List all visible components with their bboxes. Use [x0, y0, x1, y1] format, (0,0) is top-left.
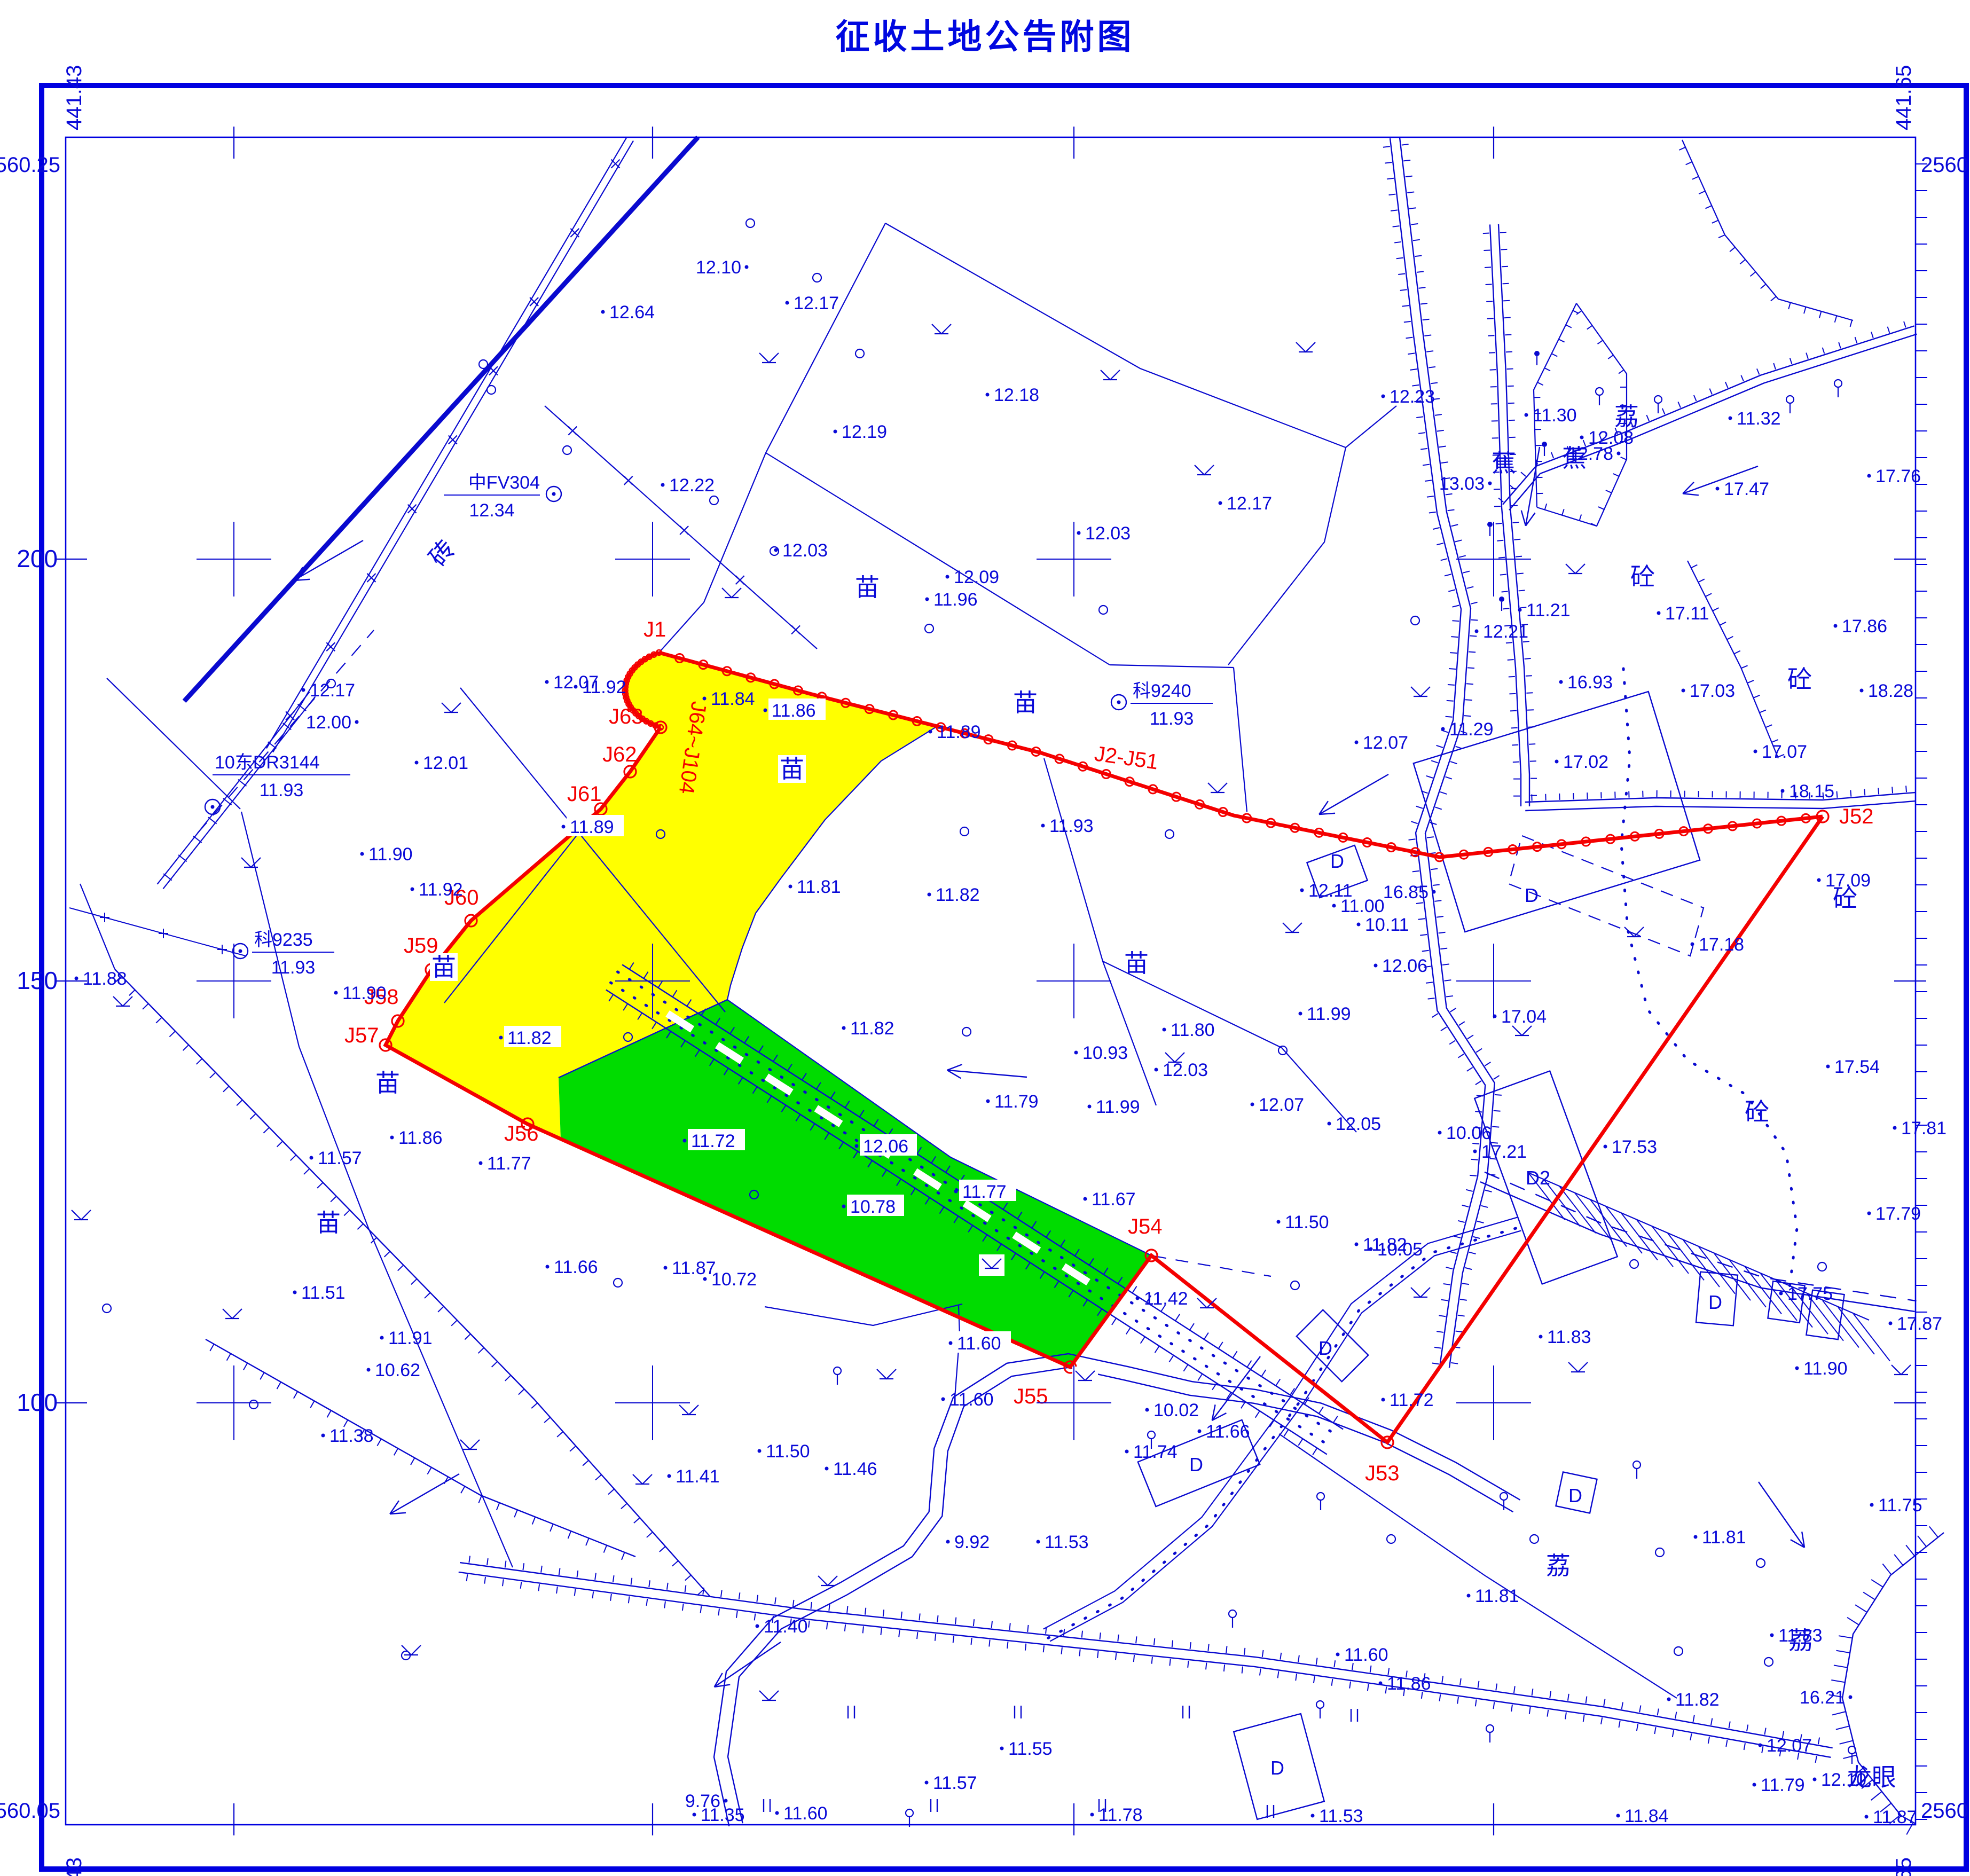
slope-tick [1855, 337, 1857, 343]
land-use-label: 苗 [780, 755, 804, 783]
slope-tick [1460, 1299, 1467, 1300]
spot-height-value: 11.66 [554, 1257, 598, 1277]
paddy-icon [764, 1799, 770, 1812]
slope-tick [438, 1306, 444, 1312]
slope-tick [1469, 1252, 1476, 1254]
flow-arrow-icon [294, 540, 363, 580]
slope-tick [1415, 256, 1422, 257]
spot-height-value: 11.84 [711, 689, 755, 709]
slope-tick [647, 1532, 653, 1537]
slope-tick [1412, 385, 1419, 386]
slope-tick [478, 1496, 482, 1503]
grass-icon [679, 1405, 698, 1415]
slope-tick [1416, 417, 1423, 418]
tree-icon [249, 1400, 258, 1409]
spot-height-value: 12.17 [310, 680, 355, 701]
spot-height-value: 11.84 [1624, 1806, 1669, 1826]
slope-tick [955, 1618, 956, 1624]
spot-height-value: 11.90 [342, 983, 387, 1003]
tree-icon [1099, 606, 1108, 614]
spot-height-value: 11.82 [507, 1028, 552, 1048]
spot-height-value: 12.07 [1363, 733, 1408, 753]
slope-tick [1420, 303, 1427, 304]
slope-tick [1526, 693, 1533, 693]
slope-tick [1675, 1712, 1676, 1719]
slope-tick [1441, 462, 1448, 463]
slope-tick [129, 990, 135, 995]
slope-tick [1583, 1715, 1584, 1722]
spot-height-value: 11.55 [1008, 1739, 1053, 1759]
slope-tick [1804, 307, 1806, 313]
slope-tick [1512, 745, 1518, 745]
tree-icon [746, 219, 755, 227]
slope-tick [1840, 1740, 1853, 1744]
spot-height-dot [1163, 1028, 1166, 1032]
spot-height-value: 11.50 [1285, 1212, 1329, 1233]
spot-height-dot [941, 1398, 945, 1401]
slope-tick [1495, 1095, 1502, 1095]
slope-tick [1155, 1346, 1159, 1353]
slope-tick [1706, 593, 1712, 596]
slope-tick [647, 1599, 648, 1606]
spot-height-dot [1893, 1126, 1897, 1130]
slope-tick [1501, 249, 1507, 250]
spot-height-value: 11.60 [783, 1803, 828, 1824]
slope-tick [1208, 1644, 1208, 1651]
slope-tick [1551, 452, 1553, 458]
slope-tick [682, 1604, 684, 1611]
fence-x-icon [408, 505, 417, 513]
spot-height-dot [949, 1341, 953, 1345]
slope-tick [1427, 837, 1434, 838]
slope-tick [701, 1606, 702, 1613]
slope-tick [1505, 335, 1511, 335]
slope-tick [1613, 474, 1619, 476]
slope-tick [1284, 1430, 1288, 1437]
flow-arrow-icon [947, 1070, 1027, 1077]
spot-height-value: 12.07 [1767, 1736, 1812, 1756]
slope-tick [1009, 1623, 1010, 1630]
tree-icon [1630, 1260, 1638, 1268]
spot-height-value: 11.90 [368, 844, 413, 865]
slope-tick [1473, 1237, 1480, 1238]
slope-tick [1394, 242, 1401, 243]
spot-height-value: 11.89 [570, 817, 614, 837]
spot-height-value: 11.40 [764, 1616, 808, 1637]
spot-height-dot [562, 825, 566, 829]
spot-height-dot [693, 1813, 696, 1817]
slope-tick [1439, 446, 1446, 448]
slope-tick [1446, 777, 1452, 779]
slope-tick [1406, 337, 1413, 339]
slope-tick [1412, 871, 1419, 872]
flow-arrow-icon [1319, 774, 1388, 814]
slope-tick [1439, 1315, 1446, 1316]
tree-icon [1165, 830, 1174, 838]
slope-tick [523, 1563, 524, 1570]
corner-coordinate: 441.65 [1892, 1857, 1916, 1876]
slope-tick [1503, 301, 1510, 301]
spot-height-value: 12.03 [1085, 523, 1131, 544]
slope-tick [394, 1448, 398, 1455]
fruit-tree-icon [1633, 1461, 1641, 1469]
spot-height-dot [668, 1474, 671, 1478]
land-use-label: 荔 [1614, 403, 1639, 430]
spot-height-value: 17.87 [1897, 1314, 1942, 1334]
slope-tick [411, 1458, 414, 1465]
slope-tick [1204, 1333, 1208, 1340]
slope-tick [1172, 1640, 1173, 1647]
slope-tick [1761, 284, 1766, 288]
slope-tick [1432, 1014, 1438, 1017]
spot-height-value: 11.92 [582, 677, 626, 697]
tree-icon [1674, 1647, 1683, 1655]
spot-height-value: 11.50 [766, 1441, 810, 1462]
slope-tick [1882, 1564, 1891, 1574]
slope-tick [1834, 1665, 1848, 1667]
slope-tick [1476, 1049, 1482, 1053]
slope-tick [1465, 1268, 1472, 1269]
slope-tick [538, 1584, 539, 1591]
slope-tick [1298, 1655, 1299, 1662]
spot-height-value: 11.60 [957, 1333, 1001, 1354]
slope-tick [250, 1114, 256, 1119]
spot-height-dot [1555, 760, 1559, 764]
slope-tick [1513, 522, 1519, 523]
slope-tick [1420, 935, 1427, 936]
line [1490, 224, 1521, 806]
land-use-label: 苗 [1013, 689, 1038, 717]
parcel-line [107, 678, 240, 809]
spot-height-value: 16.93 [1567, 672, 1613, 693]
spot-height-dot [1219, 501, 1222, 505]
slope-tick [1863, 1592, 1875, 1600]
slope-tick [1416, 806, 1423, 809]
slope-tick [1598, 340, 1603, 344]
tree-icon [563, 446, 571, 454]
fence-x-icon [489, 366, 498, 375]
grass-icon [1296, 342, 1315, 352]
slope-tick [1492, 1127, 1499, 1127]
slope-tick [775, 1597, 776, 1604]
map-page: 征收土地公告附图 J1J63J62J61J60J59J58J57J56J55J5… [0, 0, 1970, 1876]
slope-tick [237, 1100, 242, 1105]
slope-tick [1190, 1323, 1194, 1330]
spot-height-dot [1074, 1051, 1078, 1055]
slope-tick [1847, 1618, 1859, 1625]
spot-height-value: 11.82 [850, 1018, 894, 1039]
slope-tick [1434, 900, 1441, 901]
spot-height-value: 10.11 [1365, 915, 1409, 935]
slope-tick [541, 1566, 542, 1573]
spot-height-value: 11.29 [1449, 719, 1494, 740]
slope-tick [736, 1611, 737, 1618]
slope-tick [664, 1602, 665, 1608]
building-label: D [1189, 1454, 1203, 1475]
spot-height-dot [1198, 1430, 1202, 1433]
spot-height-value: 11.78 [1098, 1805, 1143, 1825]
spot-height-value: 17.07 [1762, 742, 1807, 762]
slope-tick [1280, 1653, 1281, 1660]
slope-tick [1437, 745, 1443, 748]
slope-tick [1333, 1416, 1338, 1423]
spot-height-dot [928, 893, 931, 897]
spot-height-value: 18.15 [1789, 781, 1834, 802]
slope-tick [827, 1622, 827, 1629]
slope-tick [1469, 652, 1475, 652]
slope-tick [1906, 786, 1906, 792]
grid-cross-icon [615, 522, 690, 596]
spot-height-value: 12.21 [1483, 622, 1528, 642]
paddy-icon [1183, 1706, 1189, 1718]
slope-tick [277, 1382, 281, 1389]
spot-height-dot [367, 1368, 371, 1372]
slope-tick [1894, 1555, 1903, 1565]
fruit-tree-icon [1486, 1725, 1494, 1732]
spot-height-dot [1473, 1150, 1477, 1153]
slope-tick [685, 1585, 686, 1592]
spot-height-dot [1694, 1535, 1698, 1539]
slope-tick [1389, 194, 1396, 195]
spot-height-dot [355, 720, 359, 724]
slope-tick [1760, 710, 1766, 713]
fruit-tree-icon [1148, 1431, 1155, 1439]
spot-height-value: 11.82 [1675, 1690, 1720, 1710]
slope-tick [1771, 296, 1776, 301]
slope-tick [1718, 235, 1725, 238]
slope-tick [1836, 1726, 1849, 1729]
building-label: D [1708, 1291, 1722, 1313]
slope-tick [1314, 1676, 1315, 1683]
slope-tick [143, 1003, 148, 1009]
spot-height-value: 10.93 [1082, 1043, 1128, 1063]
fence-x-icon [326, 642, 335, 651]
slope-tick [1662, 409, 1665, 414]
slope-tick [1440, 948, 1447, 949]
control-point-name: 科9235 [254, 930, 313, 950]
banana-plant-icon [1487, 522, 1493, 527]
spot-height-dot [1000, 1747, 1004, 1751]
slope-tick [1507, 369, 1513, 370]
slope-tick [1486, 301, 1493, 302]
slope-tick [1720, 622, 1726, 625]
tree-icon [925, 624, 933, 633]
slope-tick [1686, 162, 1692, 164]
slope-tick [1762, 1746, 1763, 1753]
building-label: D [1525, 884, 1539, 906]
corner-coordinate: 2560.25 [1921, 153, 1970, 177]
slope-tick [156, 1017, 162, 1023]
spot-height-dot [1716, 487, 1720, 491]
spot-height-dot [1441, 727, 1445, 731]
spot-height-value: 11.53 [1045, 1532, 1089, 1552]
grass-icon [633, 1474, 652, 1484]
slope-tick [357, 1224, 363, 1229]
spot-height-dot [1379, 1682, 1383, 1685]
land-use-label: 苗 [316, 1209, 341, 1237]
slope-tick [227, 1354, 231, 1361]
slope-tick [971, 1638, 971, 1645]
spot-height-value: 13.03 [1439, 474, 1485, 494]
slope-tick [1460, 1678, 1461, 1685]
slope-tick [1773, 363, 1776, 369]
slope-tick [1606, 490, 1612, 493]
slope-tick [1219, 1342, 1223, 1349]
slope-tick [1516, 556, 1522, 557]
slope-tick [1462, 1283, 1469, 1284]
spot-height-dot [1432, 890, 1436, 894]
slope-tick [1349, 1682, 1351, 1689]
spot-height-dot [786, 301, 789, 305]
fence-x-icon [530, 297, 538, 306]
slope-tick [244, 1363, 247, 1370]
grid-cross-icon [1037, 944, 1111, 1018]
slope-tick [634, 1518, 640, 1523]
map-canvas: J1J63J62J61J60J59J58J57J56J55J54J53J52J2… [0, 0, 1970, 1876]
spot-height-dot [1759, 1744, 1762, 1747]
slope-tick [1423, 465, 1430, 466]
slope-tick [1226, 1646, 1227, 1653]
slope-tick [1429, 367, 1435, 368]
spot-height-dot [479, 1161, 483, 1165]
slope-tick [1262, 1650, 1263, 1657]
spot-height-dot [758, 1449, 762, 1453]
slope-tick [1693, 1715, 1694, 1722]
slope-tick [1698, 579, 1705, 582]
spot-height-dot [703, 1277, 707, 1281]
slope-tick [1871, 1580, 1883, 1587]
spot-height-value: 11.86 [1387, 1674, 1431, 1694]
boundary-point-label: J53 [1365, 1462, 1400, 1485]
slope-tick [1475, 1699, 1477, 1706]
slope-tick [847, 1606, 847, 1613]
fence-x-icon [570, 229, 579, 237]
slope-tick [1244, 1648, 1245, 1655]
slope-tick [1740, 260, 1745, 264]
label-mask [874, 1365, 899, 1386]
parcel-line [80, 884, 115, 969]
slope-tick [1451, 524, 1458, 526]
slope-tick [1508, 660, 1514, 660]
slope-tick [1619, 370, 1624, 374]
slope-tick [1734, 651, 1740, 654]
spot-height-dot [1355, 1243, 1359, 1246]
slope-tick [1383, 146, 1390, 147]
slope-tick [1467, 1035, 1473, 1039]
corner-coordinate: 2560.05 [1921, 1799, 1970, 1823]
spot-height-dot [703, 697, 707, 701]
grass-icon [1411, 1288, 1430, 1297]
slope-tick [1545, 504, 1547, 509]
slope-tick [1514, 1686, 1515, 1693]
road-edge [273, 141, 633, 752]
slope-tick [1506, 352, 1512, 352]
slope-tick [881, 1628, 881, 1635]
spot-height-dot [1667, 1698, 1671, 1701]
slope-tick [829, 1604, 829, 1611]
slope-tick [1502, 266, 1508, 267]
grass-icon [460, 1440, 480, 1449]
spot-height-dot [756, 1624, 759, 1628]
slope-tick [1637, 1724, 1638, 1731]
slope-tick [1441, 1027, 1447, 1031]
boundary-point-label: J52 [1839, 805, 1874, 828]
fence-x-icon [736, 576, 744, 584]
slope-tick [469, 1556, 470, 1563]
spot-height-dot [75, 977, 79, 980]
slope-tick [492, 1362, 498, 1367]
slope-tick [1458, 1054, 1464, 1058]
line [206, 1339, 635, 1557]
slope-tick [1426, 776, 1433, 778]
slope-tick [1673, 1730, 1674, 1737]
slope-tick [757, 1595, 758, 1602]
slope-tick [1233, 1351, 1237, 1358]
slope-tick [1537, 382, 1543, 385]
slope-tick [1836, 791, 1837, 798]
spot-height-value: 17.47 [1724, 479, 1769, 499]
spot-height-dot [1475, 630, 1479, 633]
slope-tick [1398, 274, 1405, 275]
slope-tick [1757, 368, 1760, 374]
slope-tick [1550, 1691, 1551, 1698]
slope-tick [1451, 637, 1458, 637]
spot-height-value: 12.00 [306, 712, 351, 733]
page-title: 征收土地公告附图 [0, 10, 1970, 59]
spot-height-dot [775, 1811, 779, 1815]
slope-tick [531, 1403, 537, 1408]
slope-tick [1424, 335, 1431, 336]
slope-tick [1441, 1300, 1448, 1301]
spot-height-dot [789, 885, 792, 889]
slope-tick [1446, 494, 1453, 495]
slope-tick [1831, 1680, 1845, 1682]
spot-height-dot [1539, 1335, 1543, 1339]
slope-tick [1679, 147, 1685, 150]
slope-tick [197, 1058, 202, 1064]
slope-tick [1427, 496, 1434, 497]
land-use-label: 荔 [1788, 1627, 1813, 1654]
slope-tick [992, 1621, 992, 1628]
spot-height-value: 12.23 [1390, 387, 1435, 407]
spot-height-value: 17.53 [1612, 1137, 1657, 1157]
slope-tick [721, 1590, 722, 1597]
tree-icon [960, 827, 969, 836]
slope-tick [1471, 602, 1478, 604]
slope-tick [1514, 539, 1520, 540]
slope-tick [1431, 869, 1438, 870]
boundary-point-label: J56 [504, 1122, 539, 1145]
slope-tick [1417, 271, 1424, 272]
grass-icon [1101, 370, 1120, 380]
fruit-tree-icon [1229, 1610, 1236, 1618]
corner-coordinate: 441.43 [62, 65, 86, 130]
slope-tick [1509, 694, 1516, 694]
slope-tick [1426, 351, 1433, 352]
slope-tick [1450, 1252, 1457, 1253]
parcel-line [885, 223, 1346, 448]
slope-tick [1753, 695, 1760, 698]
fruit-tree-icon [1834, 380, 1842, 387]
slope-tick [1864, 789, 1865, 796]
spot-height-value: 11.86 [772, 701, 816, 721]
spot-height-dot [574, 685, 578, 689]
slope-tick [974, 1619, 974, 1626]
spot-height-value: 11.30 [1533, 405, 1577, 426]
slope-tick [1419, 287, 1426, 288]
slope-tick [1154, 1638, 1155, 1645]
slope-tick [1587, 326, 1592, 329]
